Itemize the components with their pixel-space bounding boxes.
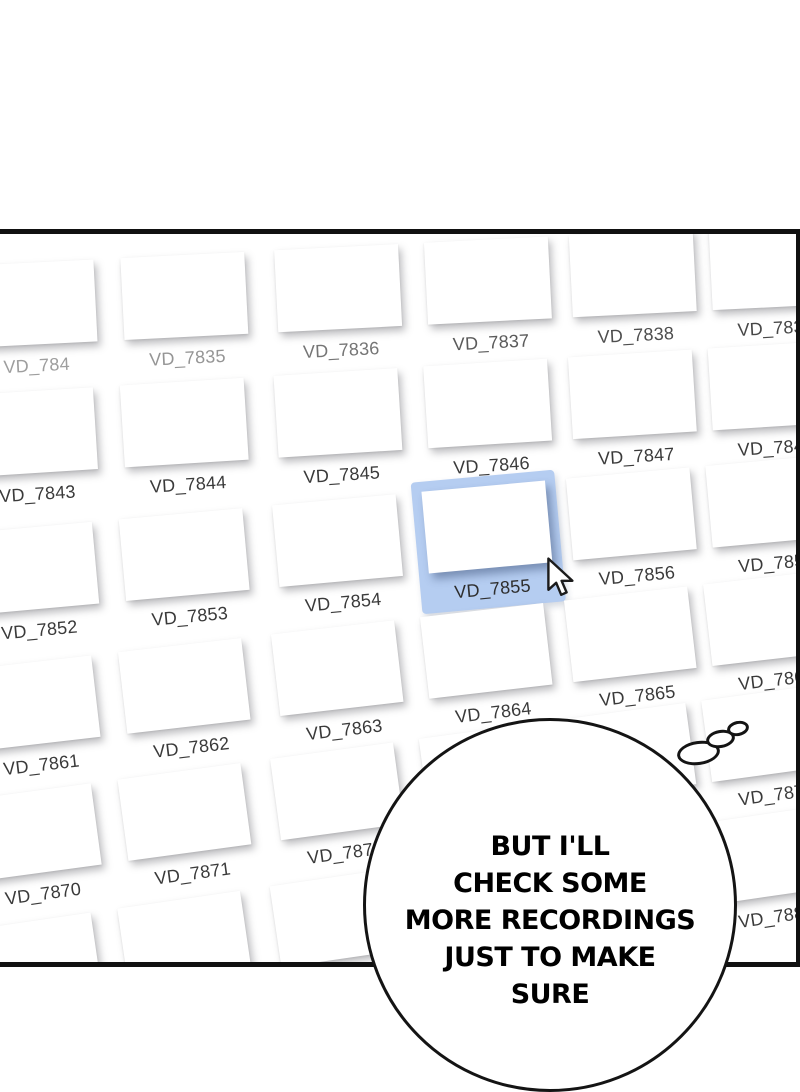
file-tile[interactable]: VD_7856 bbox=[566, 467, 700, 592]
file-label: VD_7852 bbox=[0, 614, 102, 646]
file-thumbnail bbox=[272, 494, 403, 587]
file-tile[interactable]: VD_7843 bbox=[0, 387, 100, 509]
mouse-cursor-icon bbox=[546, 557, 576, 599]
file-thumbnail bbox=[120, 378, 249, 468]
file-thumbnail bbox=[120, 252, 248, 340]
file-tile[interactable]: VD_7836 bbox=[274, 244, 404, 364]
file-label: VD_7838 bbox=[573, 322, 698, 349]
file-tile[interactable] bbox=[0, 913, 104, 967]
thought-bubble-line: CHECK SOME bbox=[405, 865, 695, 902]
file-tile[interactable]: VD_7870 bbox=[0, 783, 106, 913]
file-tile[interactable] bbox=[117, 891, 253, 967]
file-thumbnail bbox=[0, 913, 102, 967]
file-tile[interactable]: VD_7848 bbox=[708, 341, 800, 463]
file-label: VD_7839 bbox=[713, 315, 800, 342]
file-thumbnail bbox=[117, 891, 252, 967]
file-thumbnail bbox=[566, 467, 697, 560]
file-thumbnail bbox=[119, 508, 250, 601]
file-thumbnail bbox=[271, 620, 404, 716]
file-thumbnail bbox=[568, 350, 697, 440]
file-tile[interactable]: VD_7844 bbox=[120, 378, 251, 500]
file-thumbnail bbox=[703, 570, 800, 666]
file-tile[interactable]: VD_7845 bbox=[273, 368, 404, 490]
file-tile[interactable]: VD_7853 bbox=[119, 508, 253, 633]
file-label: VD_7861 bbox=[0, 748, 104, 783]
file-label: VD_784 bbox=[0, 352, 99, 379]
file-tile-selected[interactable]: VD_7855 bbox=[421, 481, 555, 606]
file-label: VD_7844 bbox=[126, 471, 251, 500]
file-tile[interactable]: VD_7871 bbox=[117, 763, 255, 893]
file-label: VD_7843 bbox=[0, 480, 100, 509]
file-tile[interactable]: VD_7862 bbox=[118, 638, 254, 765]
file-tile[interactable]: VD_7852 bbox=[0, 522, 102, 647]
file-thumbnail bbox=[0, 387, 98, 477]
file-tile[interactable]: VD_7866 bbox=[703, 570, 800, 697]
file-tile[interactable]: VD_7835 bbox=[120, 252, 250, 372]
file-tile[interactable]: VD_7863 bbox=[271, 620, 407, 747]
file-thumbnail bbox=[705, 455, 800, 548]
file-thumbnail bbox=[423, 359, 552, 449]
file-label: VD_7854 bbox=[280, 587, 405, 619]
file-tile[interactable]: VD_7838 bbox=[569, 229, 699, 349]
file-thumbnail bbox=[273, 368, 402, 458]
file-thumbnail bbox=[0, 259, 98, 347]
file-tile[interactable]: VD_784 bbox=[0, 259, 99, 379]
file-tile[interactable]: VD_7839 bbox=[709, 229, 800, 342]
thought-bubble-line: JUST TO MAKE bbox=[405, 939, 695, 976]
file-thumbnail bbox=[569, 229, 697, 317]
file-tile[interactable]: VD_7847 bbox=[568, 350, 699, 472]
thought-bubble-line: SURE bbox=[405, 976, 695, 1013]
file-tile[interactable]: VD_7857 bbox=[705, 455, 800, 580]
file-label: VD_7836 bbox=[279, 337, 404, 364]
file-tile[interactable]: VD_7854 bbox=[272, 494, 406, 619]
file-label: VD_7847 bbox=[574, 442, 699, 471]
file-label: VD_7875 bbox=[714, 776, 800, 813]
file-label: VD_7871 bbox=[130, 855, 256, 892]
file-thumbnail bbox=[420, 603, 553, 699]
file-thumbnail bbox=[708, 341, 800, 431]
file-label: VD_7870 bbox=[0, 875, 106, 912]
file-tile[interactable]: VD_7865 bbox=[564, 586, 700, 713]
file-tile[interactable]: VD_7861 bbox=[0, 655, 104, 782]
thought-bubble-line: BUT I'LL bbox=[405, 828, 695, 865]
file-tile[interactable]: VD_7837 bbox=[424, 236, 554, 356]
file-thumbnail bbox=[421, 481, 552, 574]
file-label: VD_7853 bbox=[127, 601, 252, 633]
file-thumbnail bbox=[0, 783, 102, 881]
thought-bubble-text: BUT I'LLCHECK SOMEMORE RECORDINGSJUST TO… bbox=[405, 798, 695, 1013]
file-label: VD_7837 bbox=[429, 329, 554, 356]
file-thumbnail bbox=[564, 586, 697, 682]
file-label: VD_7845 bbox=[279, 461, 404, 490]
file-thumbnail bbox=[118, 638, 251, 734]
thought-bubble: BUT I'LLCHECK SOMEMORE RECORDINGSJUST TO… bbox=[363, 718, 737, 1092]
file-thumbnail bbox=[274, 244, 402, 332]
thought-bubble-line: MORE RECORDINGS bbox=[405, 902, 695, 939]
file-thumbnail bbox=[117, 763, 251, 861]
file-label: VD_7862 bbox=[129, 730, 255, 765]
file-thumbnail bbox=[424, 236, 552, 324]
file-thumbnail bbox=[0, 655, 101, 751]
file-label: VD_7835 bbox=[125, 345, 250, 372]
file-tile[interactable]: VD_7864 bbox=[420, 603, 556, 730]
file-thumbnail bbox=[0, 522, 99, 615]
file-thumbnail bbox=[709, 229, 800, 310]
file-tile[interactable]: VD_7846 bbox=[423, 359, 554, 481]
